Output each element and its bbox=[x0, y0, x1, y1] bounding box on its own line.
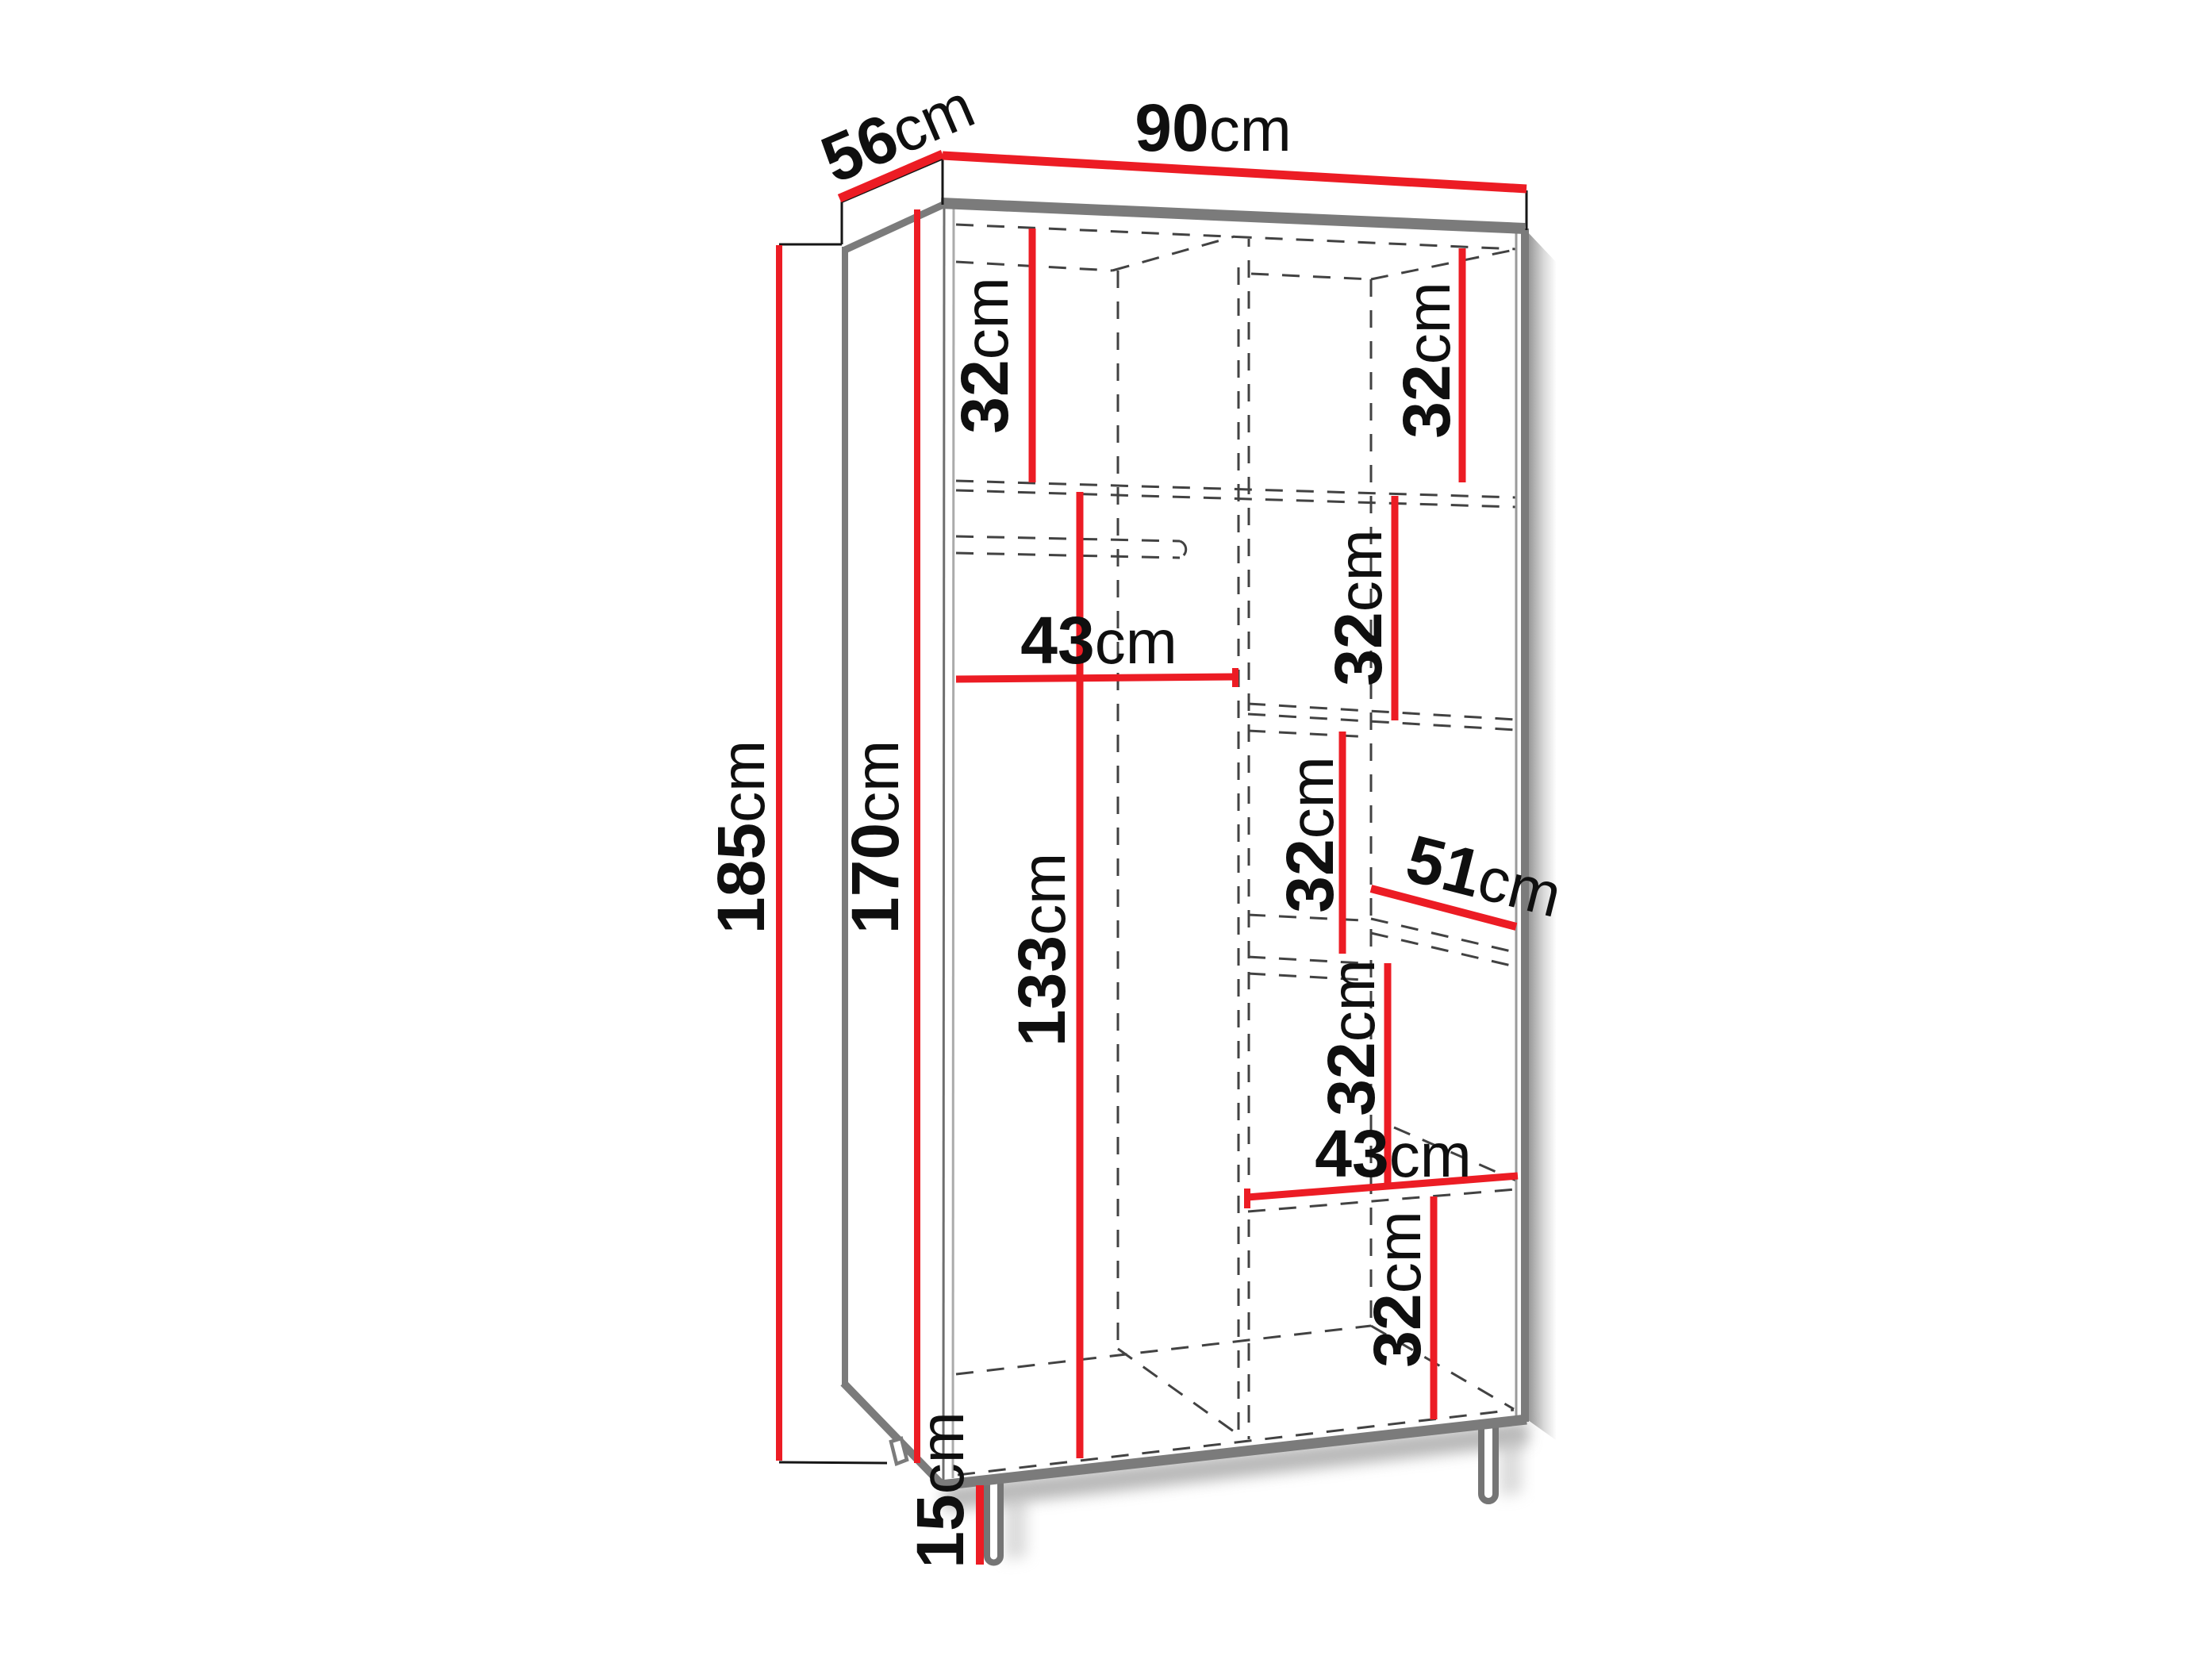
svg-text:32cm: 32cm bbox=[1360, 1211, 1434, 1367]
svg-text:32cm: 32cm bbox=[1321, 529, 1396, 685]
svg-text:185cm: 185cm bbox=[704, 740, 778, 934]
svg-text:43cm: 43cm bbox=[1020, 603, 1177, 678]
svg-text:32cm: 32cm bbox=[1314, 959, 1388, 1116]
svg-text:170cm: 170cm bbox=[838, 740, 912, 934]
svg-text:32cm: 32cm bbox=[1389, 282, 1464, 438]
svg-text:133cm: 133cm bbox=[1004, 853, 1079, 1046]
svg-text:43cm: 43cm bbox=[1315, 1116, 1471, 1191]
svg-text:32cm: 32cm bbox=[947, 277, 1022, 433]
svg-text:90cm: 90cm bbox=[1135, 90, 1291, 165]
svg-text:32cm: 32cm bbox=[1273, 756, 1347, 912]
svg-text:15cm: 15cm bbox=[903, 1411, 977, 1568]
